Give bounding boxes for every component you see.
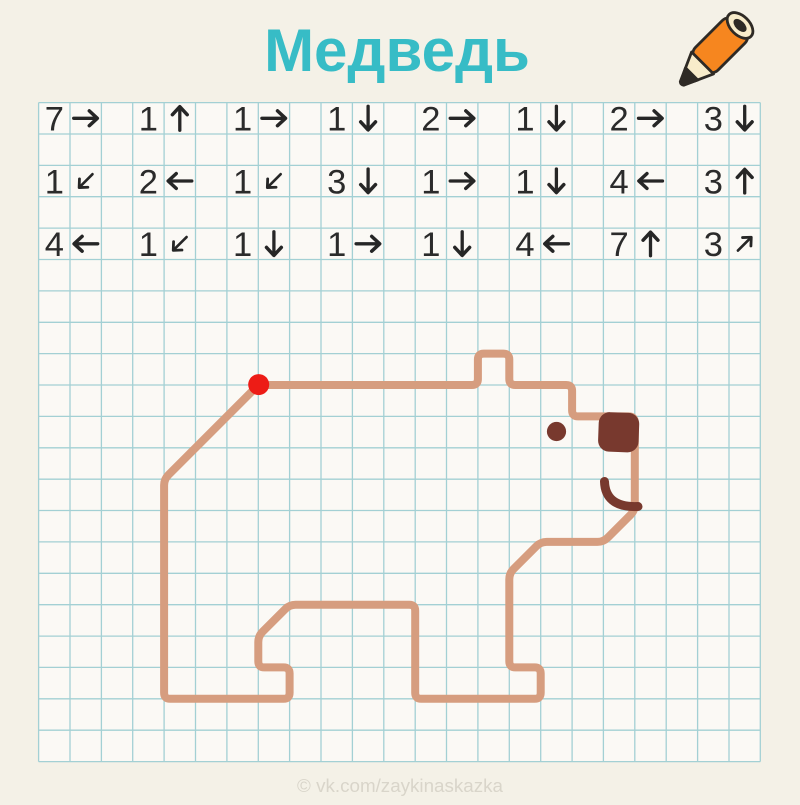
svg-text:Медведь: Медведь (264, 17, 530, 84)
svg-text:4: 4 (45, 226, 64, 264)
svg-text:4: 4 (610, 163, 629, 201)
svg-text:1: 1 (139, 101, 158, 139)
svg-text:1: 1 (327, 101, 346, 139)
svg-text:7: 7 (610, 226, 629, 264)
svg-text:2: 2 (139, 163, 158, 201)
svg-text:2: 2 (610, 101, 629, 139)
svg-text:1: 1 (233, 163, 252, 201)
svg-text:3: 3 (704, 226, 723, 264)
svg-text:7: 7 (45, 101, 64, 139)
svg-text:1: 1 (327, 226, 346, 264)
svg-text:1: 1 (421, 163, 440, 201)
svg-text:1: 1 (45, 163, 64, 201)
svg-text:4: 4 (515, 226, 534, 264)
svg-text:© vk.com/zaykinaskazka: © vk.com/zaykinaskazka (297, 775, 503, 796)
svg-text:2: 2 (421, 101, 440, 139)
svg-text:1: 1 (515, 101, 534, 139)
svg-text:1: 1 (421, 226, 440, 264)
svg-text:3: 3 (704, 163, 723, 201)
svg-text:1: 1 (515, 163, 534, 201)
svg-text:3: 3 (327, 163, 346, 201)
svg-text:1: 1 (139, 226, 158, 264)
svg-text:3: 3 (704, 101, 723, 139)
svg-text:1: 1 (233, 101, 252, 139)
svg-text:1: 1 (233, 226, 252, 264)
